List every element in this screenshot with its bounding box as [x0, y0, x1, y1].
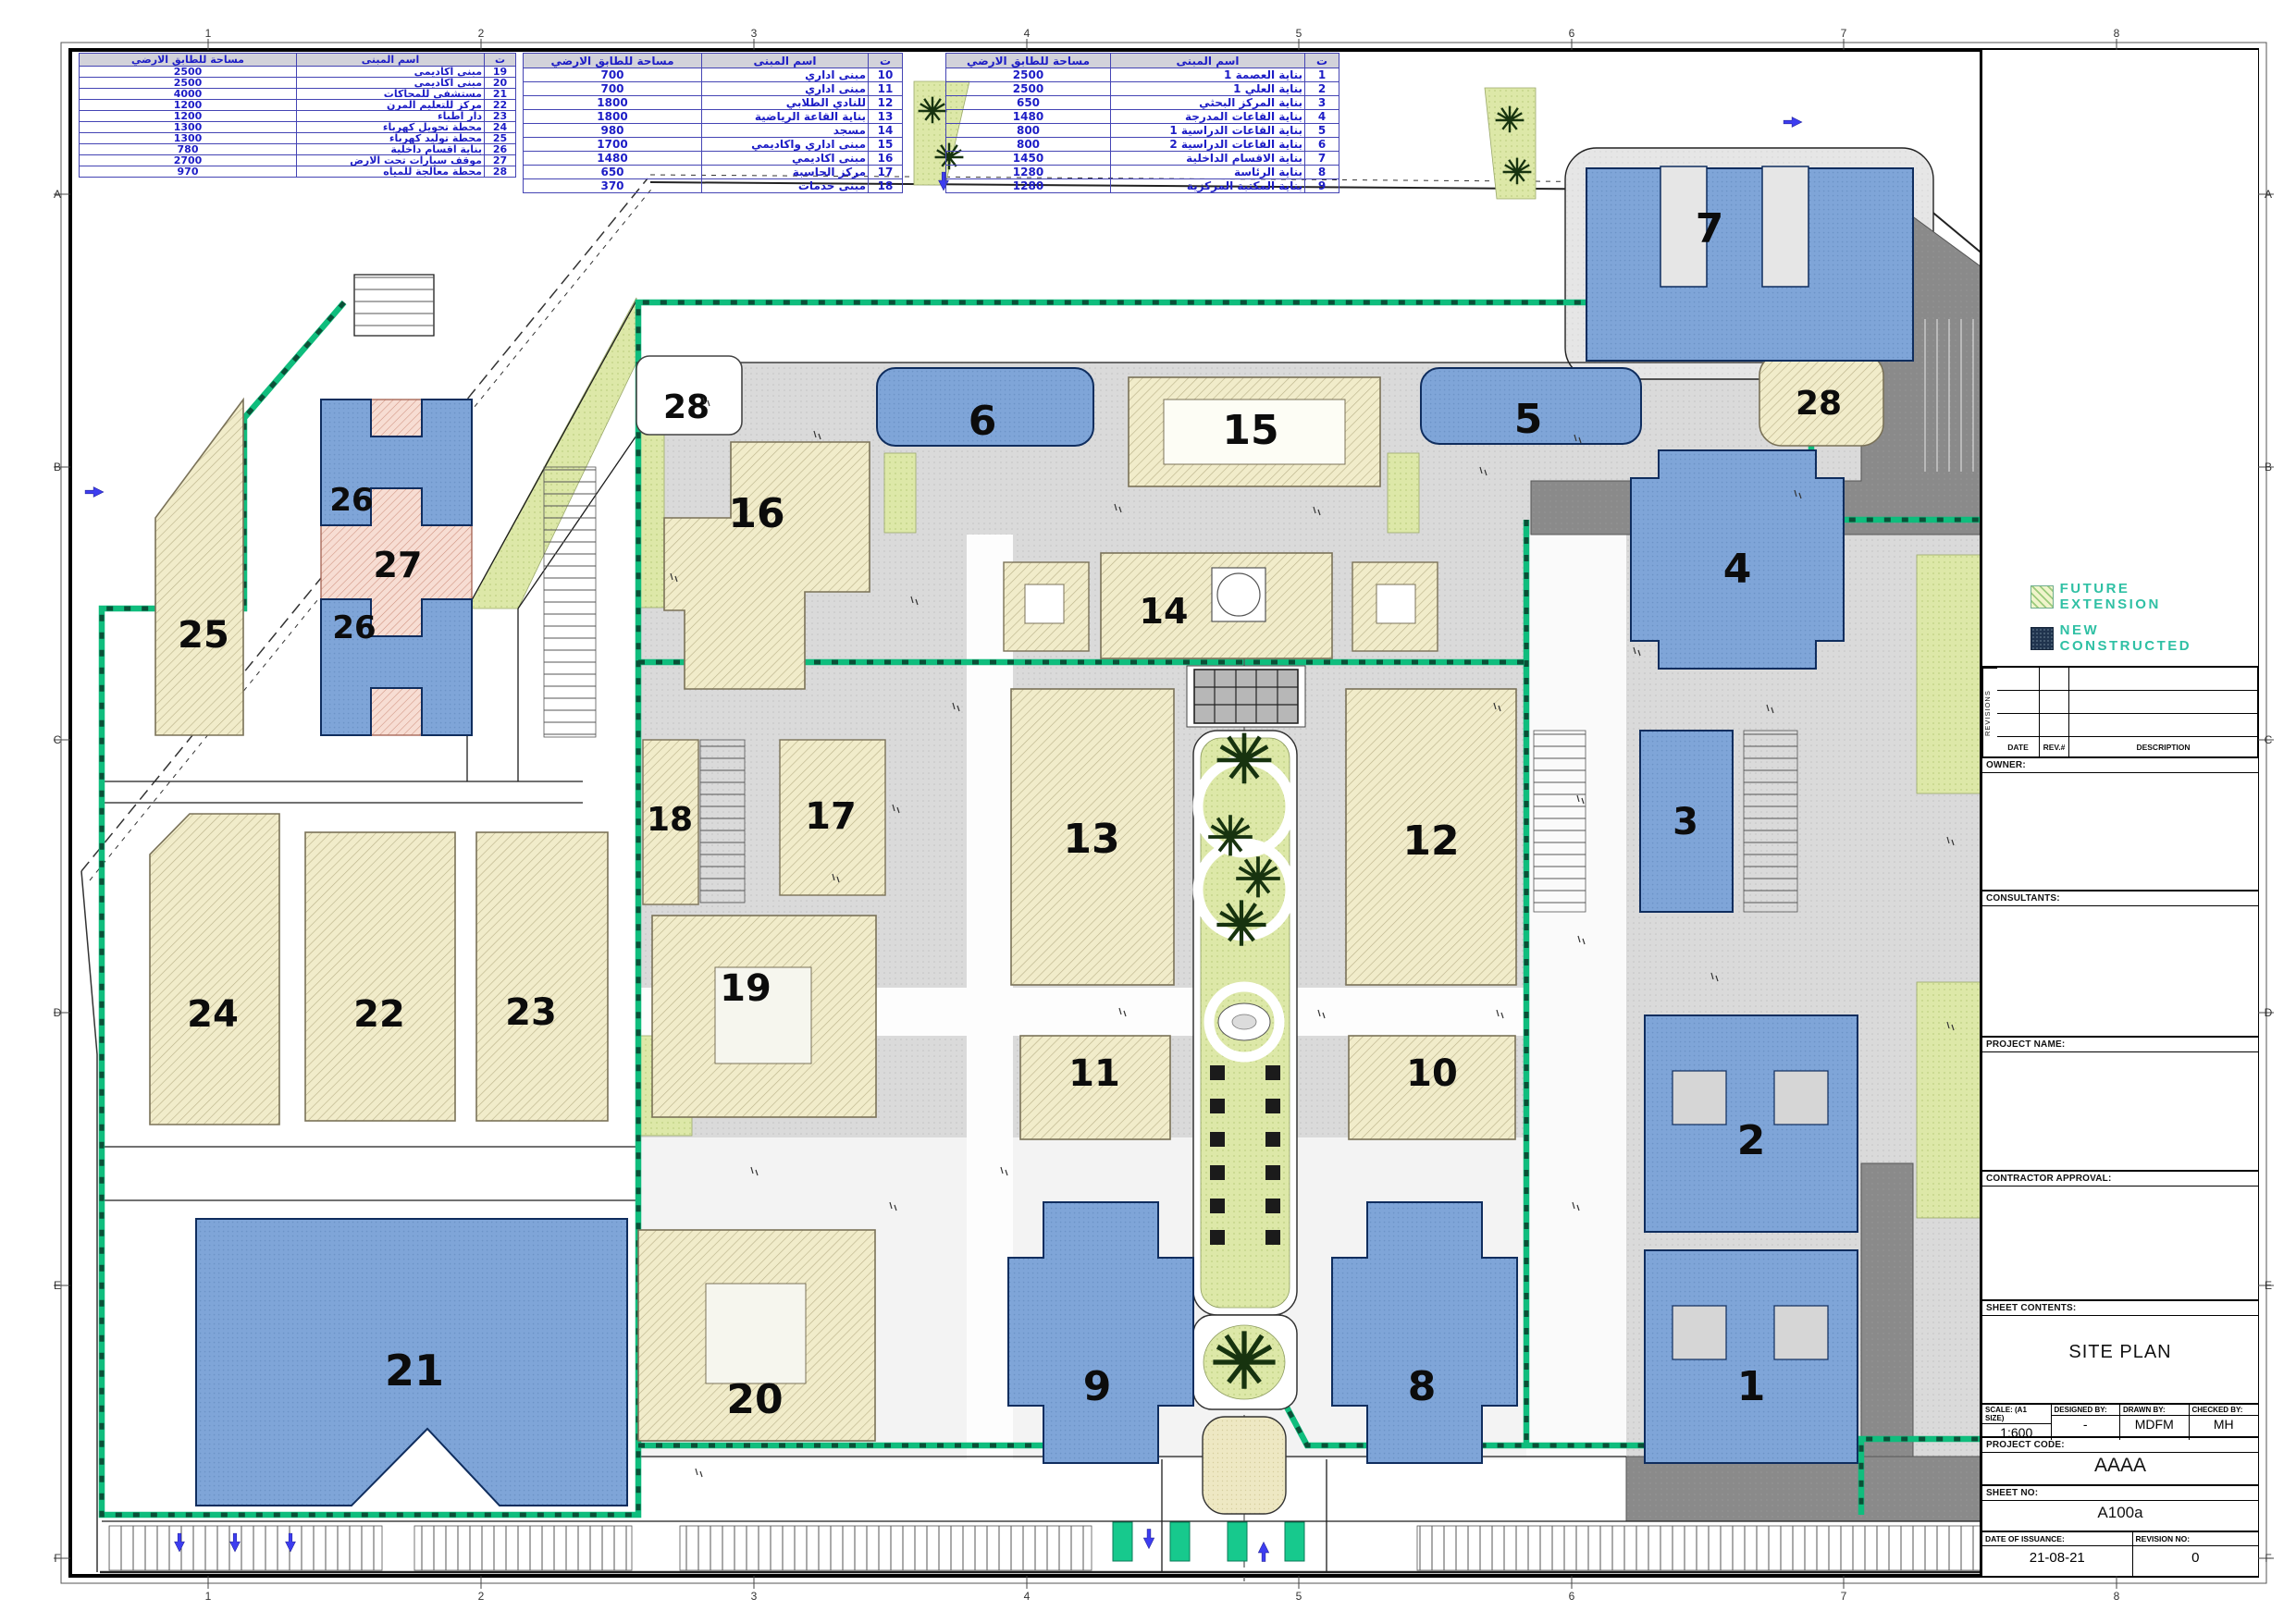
- sheet-contents-section: SHEET CONTENTS: SITE PLAN: [1982, 1299, 2258, 1403]
- col-header-name: اسم المبنى: [702, 54, 869, 68]
- date-of-issuance-label: DATE OF ISSUANCE:: [1982, 1532, 2132, 1546]
- svg-text:19: 19: [720, 967, 772, 1010]
- contractor-approval-label: CONTRACTOR APPROVAL:: [1982, 1172, 2258, 1187]
- cell-no: 20: [485, 78, 516, 89]
- svg-text:10: 10: [1406, 1052, 1458, 1095]
- building-1: 1: [1645, 1250, 1858, 1463]
- schedule-table-1-9: ت اسم المبنى مساحة للطابق الارضي 1بناية …: [945, 53, 1339, 193]
- svg-text:26: 26: [329, 482, 373, 519]
- building-12: 12: [1346, 689, 1516, 985]
- cell-no: 24: [485, 122, 516, 133]
- svg-text:17: 17: [805, 795, 857, 838]
- svg-text:25: 25: [178, 614, 229, 657]
- cell-area: 780: [80, 144, 297, 155]
- cell-no: 6: [1305, 138, 1339, 152]
- cell-area: 1300: [80, 133, 297, 144]
- table-row: 12للنادي الطلابي1800: [524, 96, 903, 110]
- table-row: 25محطة توليد كهرباء1300: [80, 133, 516, 144]
- owner-label: OWNER:: [1982, 758, 2258, 773]
- table-row: 13بناية القاعة الرياضية1800: [524, 110, 903, 124]
- cell-name: مركز للتعليم المرن: [297, 100, 485, 111]
- col-header-area: مساحة للطابق الارضي: [80, 54, 297, 67]
- revisions-vertical-label: REVISIONS: [1982, 668, 1997, 758]
- svg-text:28: 28: [663, 388, 710, 426]
- svg-text:B: B: [54, 461, 61, 473]
- consultants-section: CONSULTANTS:: [1982, 890, 2258, 1036]
- svg-text:6: 6: [1569, 27, 1575, 40]
- svg-text:4: 4: [1723, 546, 1752, 593]
- table-row: 10مبنى اداري700: [524, 68, 903, 82]
- legend-label: FUTURE EXTENSION: [2060, 581, 2234, 612]
- col-header-name: اسم المبنى: [1111, 54, 1305, 68]
- svg-text:14: 14: [1140, 591, 1189, 632]
- cell-area: 1800: [524, 96, 702, 110]
- svg-text:8: 8: [2114, 1590, 2120, 1603]
- table-row: 6بناية القاعات الدراسية 2800: [946, 138, 1339, 152]
- building-5: 5: [1421, 368, 1641, 444]
- cell-no: 2: [1305, 82, 1339, 96]
- cell-area: 1450: [946, 152, 1111, 166]
- building-28-east: 28: [1759, 353, 1883, 446]
- svg-text:27: 27: [374, 545, 423, 585]
- cell-no: 8: [1305, 166, 1339, 179]
- table-row: 7بناية الاقسام الداخلية1450: [946, 152, 1339, 166]
- cell-name: محطة تحويل كهرباء: [297, 122, 485, 133]
- svg-text:11: 11: [1068, 1052, 1120, 1095]
- building-17: 17: [780, 740, 885, 895]
- building-19: 19: [652, 916, 876, 1117]
- svg-text:4: 4: [1024, 27, 1031, 40]
- building-24: 24: [150, 814, 279, 1125]
- title-block: FUTURE EXTENSION NEW CONSTRUCTED REVISIO…: [1980, 50, 2258, 1576]
- cell-area: 1480: [946, 110, 1111, 124]
- table-row: 9بناية المكتبة المركزية1280: [946, 179, 1339, 193]
- designed-by-value: -: [2052, 1416, 2120, 1432]
- svg-text:9: 9: [1083, 1363, 1112, 1410]
- svg-text:2: 2: [478, 27, 485, 40]
- cell-name: موقف سيارات تحت الارض: [297, 155, 485, 166]
- schedule-table-10-18: ت اسم المبنى مساحة للطابق الارضي 10مبنى …: [523, 53, 903, 193]
- entrance-gates: [1113, 1522, 1304, 1561]
- cell-name: بناية المكتبة المركزية: [1111, 179, 1305, 193]
- consultants-label: CONSULTANTS:: [1982, 891, 2258, 906]
- table-row: 26بناية اقسام داخلية780: [80, 144, 516, 155]
- svg-text:8: 8: [1408, 1363, 1437, 1410]
- cell-name: مبنى اكاديمي: [297, 67, 485, 78]
- revisions-table: REVISIONS DATE REV.# DESCRIPTION: [1982, 666, 2258, 756]
- building-23: 23: [476, 832, 608, 1121]
- cell-name: مسجد: [702, 124, 869, 138]
- svg-text:2: 2: [478, 1590, 485, 1603]
- cell-area: 2700: [80, 155, 297, 166]
- owner-section: OWNER:: [1982, 756, 2258, 890]
- table-row: 20مبنى اكاديمي2500: [80, 78, 516, 89]
- table-row: 28محطة معالجة للمياه970: [80, 166, 516, 178]
- svg-text:D: D: [2265, 1006, 2273, 1019]
- svg-text:21: 21: [385, 1346, 444, 1396]
- building-15: 15: [1129, 377, 1380, 486]
- cell-no: 21: [485, 89, 516, 100]
- cell-name: بناية القاعات المدرجة: [1111, 110, 1305, 124]
- building-3: 3: [1640, 731, 1733, 912]
- table-row: 1بناية العصمة 12500: [946, 68, 1339, 82]
- table-row: 3بناية المركز البحثي650: [946, 96, 1339, 110]
- table-row: 16مبنى اكاديمي1480: [524, 152, 903, 166]
- cell-area: 4000: [80, 89, 297, 100]
- building-10: 10: [1349, 1036, 1515, 1139]
- cell-no: 7: [1305, 152, 1339, 166]
- table-row: 17مركز الحاسبة650: [524, 166, 903, 179]
- building-11: 11: [1020, 1036, 1170, 1139]
- cell-name: مبنى اكاديمي: [702, 152, 869, 166]
- cell-no: 25: [485, 133, 516, 144]
- cell-area: 970: [80, 166, 297, 178]
- table-row: 18مبنى خدمات370: [524, 179, 903, 193]
- svg-text:24: 24: [187, 993, 239, 1036]
- cell-name: مبنى اداري واكاديمي: [702, 138, 869, 152]
- svg-text:D: D: [54, 1006, 62, 1019]
- svg-text:8: 8: [2114, 27, 2120, 40]
- cell-area: 2500: [946, 82, 1111, 96]
- legend-label: NEW CONSTRUCTED: [2060, 622, 2234, 654]
- future-extension-swatch: [2031, 585, 2054, 609]
- cell-no: 1: [1305, 68, 1339, 82]
- project-name-label: PROJECT NAME:: [1982, 1038, 2258, 1052]
- svg-text:18: 18: [647, 801, 693, 839]
- cell-no: 14: [869, 124, 903, 138]
- svg-text:5: 5: [1296, 1590, 1302, 1603]
- cell-no: 17: [869, 166, 903, 179]
- cell-no: 9: [1305, 179, 1339, 193]
- svg-text:6: 6: [1569, 1590, 1575, 1603]
- svg-text:22: 22: [353, 993, 405, 1036]
- cell-area: 980: [524, 124, 702, 138]
- col-header-area: مساحة للطابق الارضي: [946, 54, 1111, 68]
- svg-text:7: 7: [1696, 205, 1724, 252]
- date-of-issuance-value: 21-08-21: [1982, 1546, 2132, 1566]
- drawn-by-label: DRAWN BY:: [2120, 1405, 2189, 1416]
- col-header-area: مساحة للطابق الارضي: [524, 54, 702, 68]
- cell-area: 2500: [80, 78, 297, 89]
- building-2: 2: [1645, 1015, 1858, 1232]
- svg-text:28: 28: [1796, 385, 1842, 423]
- checked-by-label: CHECKED BY:: [2190, 1405, 2259, 1416]
- cell-no: 23: [485, 111, 516, 122]
- cell-no: 5: [1305, 124, 1339, 138]
- cell-name: بناية الرئاسة: [1111, 166, 1305, 179]
- schedule-table-19-28: ت اسم المبنى مساحة للطابق الارضي 19مبنى …: [79, 53, 516, 178]
- building-25: 25: [155, 400, 243, 735]
- designed-by-label: DESIGNED BY:: [2052, 1405, 2120, 1416]
- building-13: 13: [1011, 689, 1174, 985]
- cell-no: 28: [485, 166, 516, 178]
- description-column-header: DESCRIPTION: [2069, 737, 2258, 758]
- scale-label: SCALE: (A1 SIZE): [1982, 1405, 2051, 1424]
- svg-text:7: 7: [1841, 27, 1847, 40]
- date-column-header: DATE: [1997, 737, 2040, 758]
- cell-no: 18: [869, 179, 903, 193]
- svg-text:F: F: [2265, 1552, 2271, 1565]
- cell-name: دار اطباء: [297, 111, 485, 122]
- cell-name: بناية الاقسام الداخلية: [1111, 152, 1305, 166]
- table-row: 4بناية القاعات المدرجة1480: [946, 110, 1339, 124]
- new-constructed-swatch: [2031, 627, 2054, 650]
- svg-text:C: C: [54, 733, 62, 746]
- revision-no-label: REVISION NO:: [2133, 1532, 2258, 1546]
- cell-area: 800: [946, 138, 1111, 152]
- cell-area: 1300: [80, 122, 297, 133]
- building-22: 22: [305, 832, 455, 1121]
- cell-no: 22: [485, 100, 516, 111]
- svg-text:1: 1: [205, 1590, 212, 1603]
- table-row: 14مسجد980: [524, 124, 903, 138]
- table-row: 5بناية القاعات الدراسية 1800: [946, 124, 1339, 138]
- building-18: 18: [643, 740, 698, 904]
- sheet-contents-label: SHEET CONTENTS:: [1982, 1301, 2258, 1316]
- contractor-approval-section: CONTRACTOR APPROVAL:: [1982, 1170, 2258, 1299]
- cell-area: 370: [524, 179, 702, 193]
- cell-no: 15: [869, 138, 903, 152]
- cell-area: 1800: [524, 110, 702, 124]
- cell-area: 1200: [80, 100, 297, 111]
- cell-no: 12: [869, 96, 903, 110]
- col-header-serial: ت: [869, 54, 903, 68]
- cell-area: 1480: [524, 152, 702, 166]
- table-row: 24محطة تحويل كهرباء1300: [80, 122, 516, 133]
- table-row: 2بناية العلي 12500: [946, 82, 1339, 96]
- svg-text:6: 6: [969, 398, 997, 445]
- table-row: 8بناية الرئاسة1280: [946, 166, 1339, 179]
- svg-text:12: 12: [1402, 818, 1459, 865]
- site-plan: 12345678 12345678 ABCDEF ABCDEF: [0, 0, 2296, 1623]
- cell-name: مبنى اداري: [702, 68, 869, 82]
- sheet-no-value: A100a: [1982, 1504, 2258, 1522]
- cell-area: 650: [524, 166, 702, 179]
- cell-no: 13: [869, 110, 903, 124]
- svg-text:13: 13: [1063, 816, 1119, 863]
- cell-no: 11: [869, 82, 903, 96]
- cell-name: بناية العلي 1: [1111, 82, 1305, 96]
- checked-by-value: MH: [2190, 1416, 2259, 1432]
- cell-name: محطة توليد كهرباء: [297, 133, 485, 144]
- svg-text:C: C: [2265, 733, 2273, 746]
- building-4: 4: [1631, 450, 1844, 669]
- cell-name: بناية القاعة الرياضية: [702, 110, 869, 124]
- revision-no-value: 0: [2133, 1546, 2258, 1566]
- cell-name: مبنى خدمات: [702, 179, 869, 193]
- building-21: 21: [196, 1219, 627, 1506]
- legend: FUTURE EXTENSION NEW CONSTRUCTED: [2031, 581, 2234, 664]
- cell-no: 19: [485, 67, 516, 78]
- cell-no: 4: [1305, 110, 1339, 124]
- cell-no: 10: [869, 68, 903, 82]
- cell-name: بناية العصمة 1: [1111, 68, 1305, 82]
- cell-area: 1200: [80, 111, 297, 122]
- svg-text:15: 15: [1222, 407, 1278, 454]
- building-14-mosque: 14: [1004, 553, 1438, 658]
- table-row: 11مبنى اداري700: [524, 82, 903, 96]
- project-code-section: PROJECT CODE: AAAA: [1982, 1436, 2258, 1484]
- cell-name: مبنى اكاديمي: [297, 78, 485, 89]
- cell-area: 2500: [946, 68, 1111, 82]
- cell-area: 700: [524, 68, 702, 82]
- svg-text:23: 23: [505, 991, 557, 1034]
- pergola: [1194, 670, 1298, 723]
- table-row: 22مركز للتعليم المرن1200: [80, 100, 516, 111]
- svg-text:16: 16: [728, 490, 784, 537]
- svg-text:3: 3: [751, 1590, 758, 1603]
- table-row: 23دار اطباء1200: [80, 111, 516, 122]
- table-row: 21مستشفى للمحاكات4000: [80, 89, 516, 100]
- svg-text:A: A: [2265, 188, 2272, 201]
- scale-row: SCALE: (A1 SIZE) 1:600 DESIGNED BY: - DR…: [1982, 1403, 2258, 1436]
- col-header-name: اسم المبنى: [297, 54, 485, 67]
- cell-name: بناية المركز البحثي: [1111, 96, 1305, 110]
- cell-area: 1280: [946, 166, 1111, 179]
- cell-no: 27: [485, 155, 516, 166]
- svg-text:E: E: [54, 1279, 61, 1292]
- building-7: 7: [1586, 166, 1913, 361]
- svg-text:1: 1: [1737, 1363, 1766, 1410]
- svg-text:4: 4: [1024, 1590, 1031, 1603]
- cell-name: بناية اقسام داخلية: [297, 144, 485, 155]
- drawing-sheet: 12345678 12345678 ABCDEF ABCDEF: [0, 0, 2296, 1623]
- svg-text:3: 3: [751, 27, 758, 40]
- svg-text:E: E: [2265, 1279, 2272, 1292]
- cell-name: مركز الحاسبة: [702, 166, 869, 179]
- cell-name: بناية القاعات الدراسية 1: [1111, 124, 1305, 138]
- cell-area: 1280: [946, 179, 1111, 193]
- project-code-label: PROJECT CODE:: [1982, 1438, 2258, 1453]
- table-row: 27موقف سيارات تحت الارض2700: [80, 155, 516, 166]
- svg-text:F: F: [54, 1552, 60, 1565]
- cell-area: 800: [946, 124, 1111, 138]
- cell-area: 1700: [524, 138, 702, 152]
- svg-text:26: 26: [332, 609, 376, 646]
- rev-column-header: REV.#: [2040, 737, 2069, 758]
- table-row: 15مبنى اداري واكاديمي1700: [524, 138, 903, 152]
- table-row: 19مبنى اكاديمي2500: [80, 67, 516, 78]
- legend-item-future-extension: FUTURE EXTENSION: [2031, 581, 2234, 612]
- issuance-row: DATE OF ISSUANCE: 21-08-21 REVISION NO: …: [1982, 1531, 2258, 1576]
- drawn-by-value: MDFM: [2120, 1416, 2189, 1432]
- cell-name: للنادي الطلابي: [702, 96, 869, 110]
- sheet-contents-value: SITE PLAN: [1982, 1342, 2258, 1363]
- sheet-no-section: SHEET NO: A100a: [1982, 1484, 2258, 1531]
- svg-text:3: 3: [1673, 801, 1698, 843]
- cell-area: 2500: [80, 67, 297, 78]
- cell-name: مستشفى للمحاكات: [297, 89, 485, 100]
- svg-text:2: 2: [1737, 1117, 1766, 1164]
- col-header-serial: ت: [485, 54, 516, 67]
- cell-name: مبنى اداري: [702, 82, 869, 96]
- cell-area: 700: [524, 82, 702, 96]
- cell-name: محطة معالجة للمياه: [297, 166, 485, 178]
- svg-text:5: 5: [1296, 27, 1302, 40]
- building-6: 6: [877, 368, 1093, 446]
- svg-text:7: 7: [1841, 1590, 1847, 1603]
- project-name-section: PROJECT NAME:: [1982, 1036, 2258, 1170]
- svg-text:B: B: [2265, 461, 2272, 473]
- cell-no: 3: [1305, 96, 1339, 110]
- svg-text:A: A: [54, 188, 61, 201]
- svg-text:5: 5: [1514, 396, 1543, 443]
- cell-name: بناية القاعات الدراسية 2: [1111, 138, 1305, 152]
- legend-item-new-constructed: NEW CONSTRUCTED: [2031, 622, 2234, 654]
- svg-text:1: 1: [205, 27, 212, 40]
- col-header-serial: ت: [1305, 54, 1339, 68]
- building-20: 20: [638, 1230, 875, 1441]
- project-code-value: AAAA: [1982, 1455, 2258, 1477]
- cell-area: 650: [946, 96, 1111, 110]
- svg-text:20: 20: [726, 1376, 783, 1423]
- cell-no: 26: [485, 144, 516, 155]
- sheet-no-label: SHEET NO:: [1982, 1486, 2258, 1501]
- building-28-west: 28: [636, 356, 742, 435]
- cell-no: 16: [869, 152, 903, 166]
